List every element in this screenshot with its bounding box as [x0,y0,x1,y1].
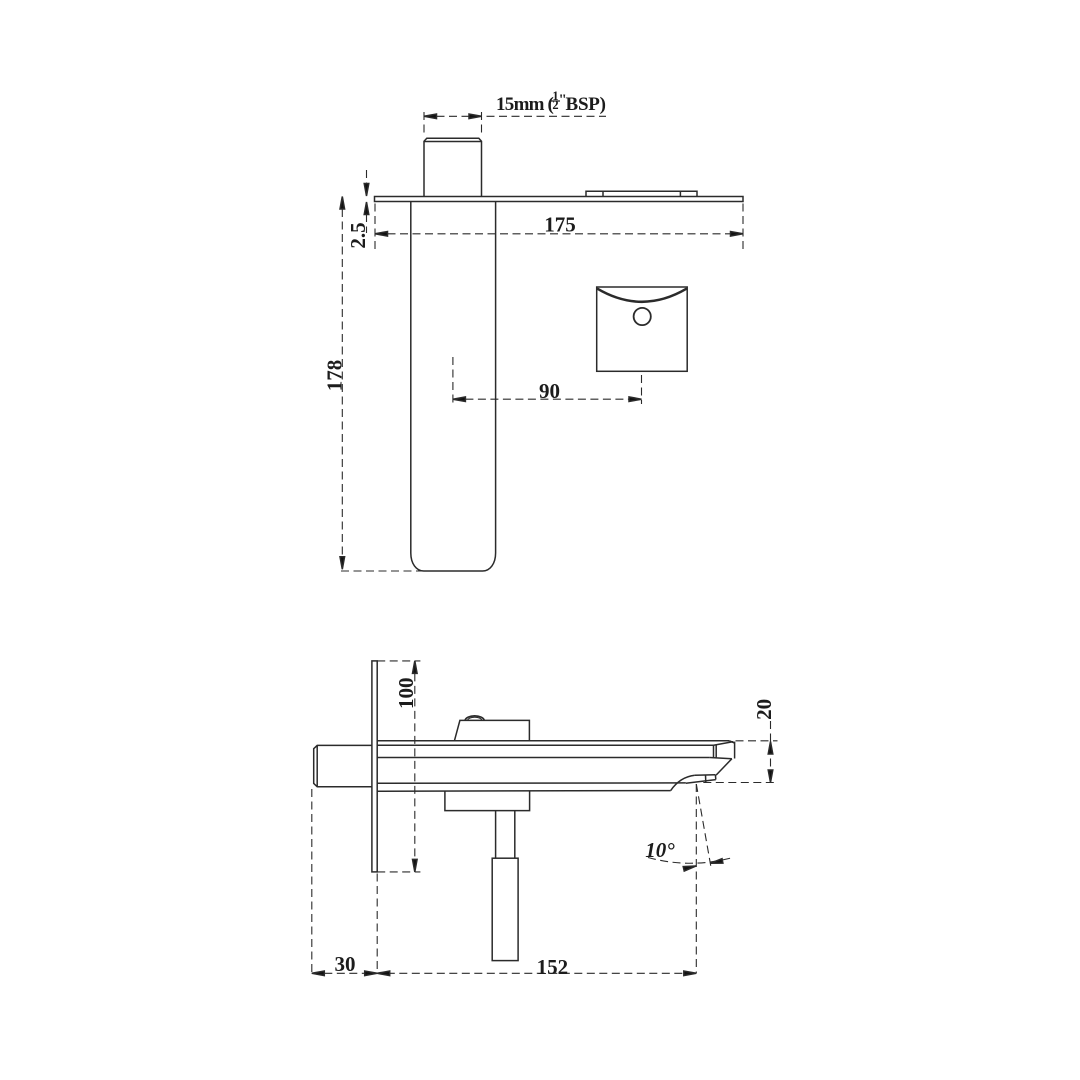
svg-text:175: 175 [544,213,576,237]
svg-text:178: 178 [323,360,347,392]
svg-text:2.5: 2.5 [346,222,370,248]
svg-text:20: 20 [752,699,776,720]
svg-text:30: 30 [335,952,356,976]
svg-text:152: 152 [537,955,569,979]
svg-text:90: 90 [539,379,560,403]
svg-text:BSP): BSP) [566,94,607,115]
svg-text:100: 100 [394,678,418,710]
svg-text:15mm: 15mm [496,94,545,115]
svg-text:10°: 10° [645,838,675,862]
